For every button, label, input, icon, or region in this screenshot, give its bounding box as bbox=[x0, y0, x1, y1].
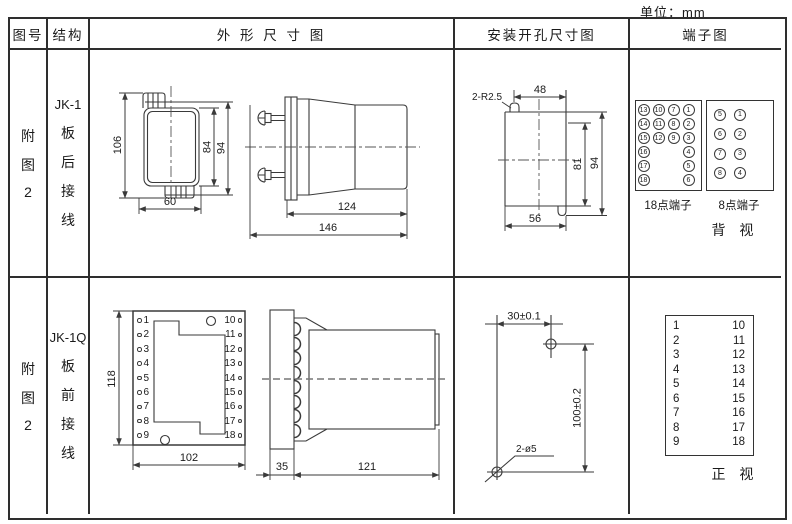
jk1q-install-drawing: 30±0.1 100±0.2 2-ø5 bbox=[455, 278, 630, 514]
dim-146: 146 bbox=[319, 222, 337, 234]
terminal-circle: 9 bbox=[668, 132, 680, 144]
terminal-pin: 3 bbox=[137, 344, 149, 355]
pin-circle-icon bbox=[137, 419, 142, 424]
r1-install-cell: 2-R2.5 48 81 94 56 bbox=[455, 50, 630, 278]
terminal-circle: 14 bbox=[638, 118, 650, 130]
terminal-number: 10 bbox=[732, 320, 745, 332]
label-holes: 2-ø5 bbox=[516, 444, 537, 455]
terminal-pin: 18 bbox=[221, 430, 242, 441]
terminal-circle: 12 bbox=[653, 132, 665, 144]
pin-circle-icon bbox=[238, 361, 243, 366]
pin-circle-icon bbox=[238, 405, 243, 410]
dim-84: 84 bbox=[202, 141, 214, 153]
terminal-number: 12 bbox=[732, 349, 745, 361]
pin-circle-icon bbox=[238, 390, 243, 395]
header-structure: 结构 bbox=[48, 19, 90, 50]
terminal-grid-18: 131071141182151293164175186 bbox=[636, 103, 696, 187]
terminal-number: 14 bbox=[732, 378, 745, 390]
terminal-circle: 4 bbox=[734, 167, 746, 179]
terminal-pin: 2 bbox=[137, 329, 149, 340]
jk1-side-view: 124 146 bbox=[245, 97, 420, 239]
header-install: 安装开孔尺寸图 bbox=[455, 19, 630, 50]
rear-view-label: 背 视 bbox=[675, 220, 792, 240]
pin-circle-icon bbox=[137, 405, 142, 410]
label-slot-radius: 2-R2.5 bbox=[472, 92, 502, 103]
terminal-circle: 15 bbox=[638, 132, 650, 144]
terminal-number: 17 bbox=[732, 422, 745, 434]
header-terminal: 端子图 bbox=[630, 19, 781, 50]
label-8pt: 8点端子 bbox=[706, 197, 772, 213]
terminal-pin: 12 bbox=[221, 344, 242, 355]
r2-figure-cell: 附 图 2 bbox=[10, 278, 48, 514]
front-pins-right: 101112131415161718 bbox=[221, 315, 242, 441]
r2-install-cell: 30±0.1 100±0.2 2-ø5 bbox=[455, 278, 630, 514]
dim-56: 56 bbox=[529, 213, 541, 225]
terminal-circle: 8 bbox=[714, 167, 726, 179]
terminal-number: 4 bbox=[673, 364, 679, 376]
terminal-number: 5 bbox=[673, 378, 679, 390]
dim-48: 48 bbox=[534, 84, 546, 96]
terminal-circle: 3 bbox=[734, 148, 746, 160]
structure-label: JK-1Q 板 前 接 线 bbox=[48, 278, 88, 514]
pin-circle-icon bbox=[238, 433, 243, 438]
terminal-circle: 1 bbox=[683, 104, 695, 116]
r1-outline-cell: 106 84 94 60 bbox=[90, 50, 455, 278]
pin-circle-icon bbox=[238, 333, 243, 338]
terminal-circle: 18 bbox=[638, 174, 650, 186]
terminal-circle: 2 bbox=[683, 118, 695, 130]
terminal-pin: 8 bbox=[137, 416, 149, 427]
pin-circle-icon bbox=[238, 376, 243, 381]
terminal-pin: 1 bbox=[137, 315, 149, 326]
pin-circle-icon bbox=[238, 347, 243, 352]
terminal-pin: 13 bbox=[221, 358, 242, 369]
dim-106: 106 bbox=[112, 136, 124, 154]
header-figure: 图号 bbox=[10, 19, 48, 50]
terminal-pin: 6 bbox=[137, 387, 149, 398]
r2-structure-cell: JK-1Q 板 前 接 线 bbox=[48, 278, 90, 514]
terminal-pin: 15 bbox=[221, 387, 242, 398]
terminal-number: 13 bbox=[732, 364, 745, 376]
terminal-number: 8 bbox=[673, 422, 679, 434]
terminal-circle: 11 bbox=[653, 118, 665, 130]
dim-94-install: 94 bbox=[589, 157, 601, 169]
pin-circle-icon bbox=[137, 347, 142, 352]
r2-terminal-cell: 123456789 101112131415161718 正 视 bbox=[630, 278, 781, 514]
jk1-install-drawing: 2-R2.5 48 81 94 56 bbox=[455, 50, 630, 278]
dim-102: 102 bbox=[180, 452, 198, 464]
figure-number: 附 图 2 bbox=[10, 278, 46, 514]
terminal-number: 7 bbox=[673, 407, 679, 419]
r1-structure-cell: JK-1 板 后 接 线 bbox=[48, 50, 90, 278]
terminal-pin: 17 bbox=[221, 416, 242, 427]
dim-124: 124 bbox=[338, 201, 356, 213]
terminal-numbers-left: 123456789 bbox=[673, 320, 679, 448]
terminal-number: 1 bbox=[673, 320, 679, 332]
jk1-front-view: 106 84 94 60 bbox=[112, 86, 233, 214]
terminal-numbers-right: 101112131415161718 bbox=[720, 320, 745, 448]
terminal-grid-8: 51627384 bbox=[710, 105, 750, 183]
terminal-circle: 7 bbox=[668, 104, 680, 116]
terminal-pin: 9 bbox=[137, 430, 149, 441]
terminal-pin: 11 bbox=[221, 329, 242, 340]
r1-terminal-cell: 131071141182151293164175186 51627384 18点… bbox=[630, 50, 781, 278]
dim-81: 81 bbox=[572, 158, 584, 170]
structure-label: JK-1 板 后 接 线 bbox=[48, 50, 88, 276]
terminal-circle: 10 bbox=[653, 104, 665, 116]
terminal-pin: 4 bbox=[137, 358, 149, 369]
datasheet-page: 单位：mm 图号 结构 外 形 尺 寸 图 安装开孔尺寸图 端子图 附 图 2 … bbox=[0, 0, 792, 524]
pin-circle-icon bbox=[137, 433, 142, 438]
pin-circle-icon bbox=[238, 318, 243, 323]
dim-100: 100±0.2 bbox=[572, 388, 584, 428]
terminal-pin: 14 bbox=[221, 373, 242, 384]
r1-figure-cell: 附 图 2 bbox=[10, 50, 48, 278]
front-view-label: 正 视 bbox=[675, 464, 792, 484]
pin-circle-icon bbox=[137, 376, 142, 381]
jk1-outline-drawing: 106 84 94 60 bbox=[90, 50, 455, 278]
terminal-circle: 1 bbox=[734, 109, 746, 121]
spec-table: 图号 结构 外 形 尺 寸 图 安装开孔尺寸图 端子图 附 图 2 JK-1 板… bbox=[8, 17, 787, 520]
figure-number: 附 图 2 bbox=[10, 50, 46, 276]
terminal-circle: 2 bbox=[734, 128, 746, 140]
terminal-circle: 6 bbox=[714, 128, 726, 140]
terminal-number: 16 bbox=[732, 407, 745, 419]
terminal-circle: 17 bbox=[638, 160, 650, 172]
terminal-pin: 7 bbox=[137, 401, 149, 412]
pin-circle-icon bbox=[137, 318, 142, 323]
terminal-number: 6 bbox=[673, 393, 679, 405]
terminal-number: 9 bbox=[673, 436, 679, 448]
terminal-circle: 5 bbox=[714, 109, 726, 121]
label-18pt: 18点端子 bbox=[633, 197, 703, 213]
front-pins-left: 123456789 bbox=[137, 315, 149, 441]
model-name: JK-1 bbox=[55, 97, 82, 112]
terminal-pin: 10 bbox=[221, 315, 242, 326]
pin-circle-icon bbox=[137, 333, 142, 338]
dim-121: 121 bbox=[358, 461, 376, 473]
terminal-circle: 8 bbox=[668, 118, 680, 130]
jk1q-side-view: 35 121 bbox=[256, 310, 446, 480]
terminal-circle: 6 bbox=[683, 174, 695, 186]
terminal-number: 11 bbox=[733, 335, 745, 347]
dim-60: 60 bbox=[164, 196, 176, 208]
model-name: JK-1Q bbox=[50, 330, 87, 345]
terminal-circle: 4 bbox=[683, 146, 695, 158]
terminal-pin: 5 bbox=[137, 373, 149, 384]
terminal-circle: 5 bbox=[683, 160, 695, 172]
terminal-number: 3 bbox=[673, 349, 679, 361]
dim-94: 94 bbox=[216, 142, 228, 154]
terminal-pin: 16 bbox=[221, 401, 242, 412]
terminal-circle: 16 bbox=[638, 146, 650, 158]
terminal-number: 18 bbox=[732, 436, 745, 448]
dim-30: 30±0.1 bbox=[507, 311, 541, 323]
dim-118: 118 bbox=[106, 370, 118, 388]
pin-circle-icon bbox=[137, 390, 142, 395]
pin-circle-icon bbox=[137, 361, 142, 366]
terminal-number: 15 bbox=[732, 393, 745, 405]
terminal-circle: 13 bbox=[638, 104, 650, 116]
pin-circle-icon bbox=[238, 419, 243, 424]
terminal-number: 2 bbox=[673, 335, 679, 347]
terminal-circle: 7 bbox=[714, 148, 726, 160]
r2-outline-cell: 118 102 35 121 bbox=[90, 278, 455, 514]
terminal-circle: 3 bbox=[683, 132, 695, 144]
header-outline: 外 形 尺 寸 图 bbox=[90, 19, 455, 50]
dim-35: 35 bbox=[276, 461, 288, 473]
